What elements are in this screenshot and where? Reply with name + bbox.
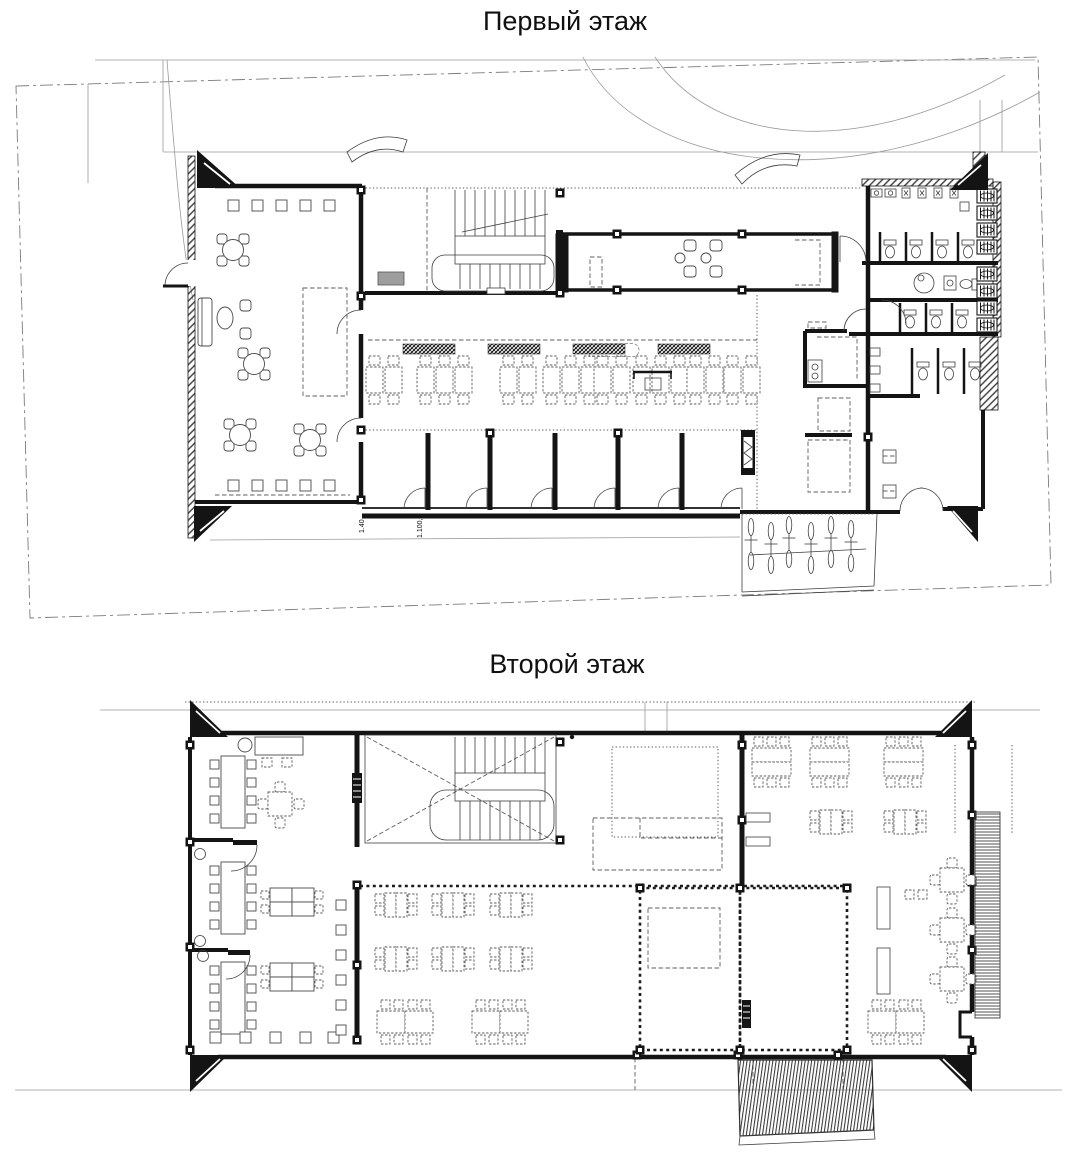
void-outline xyxy=(593,747,722,870)
round-table xyxy=(217,234,249,266)
bicycle-icon xyxy=(825,517,838,568)
toilet-icon xyxy=(884,240,896,258)
conference-table xyxy=(210,756,256,828)
radiator-icon xyxy=(977,318,997,332)
wheelchair-icon xyxy=(914,273,934,293)
round-table xyxy=(224,419,256,451)
desk-cluster xyxy=(261,888,323,916)
bicycle-icon xyxy=(845,521,858,572)
stair-core xyxy=(378,188,565,298)
shaft-marker xyxy=(352,773,362,803)
toilet-icon xyxy=(910,240,922,258)
conference-table xyxy=(210,962,256,1034)
serving-band xyxy=(573,344,625,354)
wc-block xyxy=(870,188,997,511)
counter xyxy=(877,948,890,994)
exterior-stair-hatch xyxy=(980,337,998,410)
square-table xyxy=(258,782,304,828)
urinal-icon xyxy=(934,188,942,198)
oval-table xyxy=(217,307,233,329)
bicycle-icon xyxy=(783,517,796,568)
radiator-icon xyxy=(977,301,997,315)
plant xyxy=(238,738,252,752)
toilet-icon xyxy=(936,240,948,258)
radiator-icon xyxy=(977,206,997,220)
reception-desk xyxy=(303,288,347,396)
site-boundary xyxy=(16,57,1051,618)
conference-table xyxy=(210,862,256,934)
bicycle-icon xyxy=(765,523,778,574)
radiator-icon xyxy=(977,284,997,298)
radiator-icon xyxy=(977,223,997,237)
sink-icon xyxy=(885,189,896,197)
terrace-hatch xyxy=(738,1060,875,1145)
sofa xyxy=(198,298,212,346)
radiator-icon xyxy=(977,267,997,281)
counter xyxy=(877,887,890,929)
toilet-icon xyxy=(956,310,968,328)
serving-band xyxy=(403,344,455,354)
desk xyxy=(255,737,303,755)
toilet-icon xyxy=(930,310,942,328)
corridor-room xyxy=(590,230,866,295)
dimension-label: 1.40 xyxy=(359,519,366,533)
desk-cluster xyxy=(261,963,323,991)
door-leaf xyxy=(233,840,257,845)
first-floor-plan: 1.40 1.100,0 xyxy=(16,57,1051,618)
floor-plan-document: Первый этаж Второй этаж xyxy=(0,0,1079,1163)
shaft-marker xyxy=(742,1000,751,1028)
toilet-icon xyxy=(917,362,929,380)
toilet-icon xyxy=(969,362,981,380)
entrance-door-arc xyxy=(165,263,188,286)
office-room xyxy=(195,737,363,1043)
second-floor-plan xyxy=(15,700,1062,1145)
radiator-icon xyxy=(977,240,997,254)
dining-hall xyxy=(366,295,760,510)
door-leaf xyxy=(228,950,250,955)
bicycle-icon xyxy=(745,519,758,570)
serving-band xyxy=(488,344,540,354)
dotted-rooms xyxy=(636,884,852,1055)
bicycle-icon xyxy=(805,523,818,574)
recessed-door xyxy=(960,1012,972,1037)
stair-core-void xyxy=(365,735,574,845)
first-floor-title: Первый этаж xyxy=(483,6,647,36)
radiator-icon xyxy=(977,189,997,203)
sink-icon xyxy=(871,189,882,197)
dimension-label: 1.100,0 xyxy=(417,515,424,538)
urinal-icon xyxy=(918,188,926,198)
round-table xyxy=(238,348,270,380)
round-table xyxy=(294,424,326,456)
open-hall xyxy=(360,886,847,1044)
booth-rooms: 1.40 1.100,0 xyxy=(359,429,757,539)
toilet-icon xyxy=(943,362,955,380)
mat-gray-rect xyxy=(378,272,404,285)
second-floor-title: Второй этаж xyxy=(489,649,644,679)
plans-canvas: Первый этаж Второй этаж xyxy=(0,0,1079,1163)
bike-racks xyxy=(742,514,877,596)
urinal-icon xyxy=(902,188,910,198)
walls-floor1 xyxy=(195,186,998,540)
entrance-gap xyxy=(186,260,197,286)
toilet-icon xyxy=(962,240,974,258)
balcony-hatch xyxy=(975,812,1000,1018)
left-exterior-wall xyxy=(188,156,195,538)
serving-band xyxy=(658,344,710,354)
